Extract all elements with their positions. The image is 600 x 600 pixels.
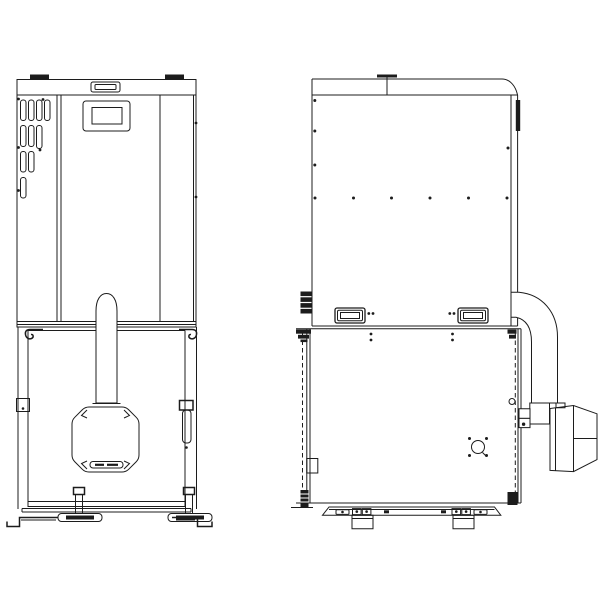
carry-handle-right <box>458 308 488 323</box>
latch-plate <box>180 401 194 411</box>
carry-handle-left <box>335 308 365 323</box>
base-beam <box>28 502 185 507</box>
pivot-pin-icon <box>509 399 515 405</box>
drawing-canvas <box>0 0 600 600</box>
burner-door-octagon <box>72 407 139 472</box>
lid-handle <box>377 75 397 78</box>
support-foot-left <box>352 515 373 529</box>
top-cap <box>312 79 518 95</box>
front-view <box>7 75 212 527</box>
lift-tab-left-icon <box>30 75 49 80</box>
base-rail <box>323 507 501 529</box>
feed-nozzle <box>530 403 550 424</box>
vent-grille <box>21 100 51 198</box>
cable-glands-icon <box>301 292 313 314</box>
door-hinge-bottom-right-icon <box>508 492 518 505</box>
cabinet-body <box>17 95 196 327</box>
boiler-lower-section <box>291 329 521 508</box>
lift-tab-right-icon <box>165 75 184 80</box>
floor-bracket-left-icon <box>7 518 58 527</box>
boiler-technical-drawing <box>0 0 600 600</box>
latch-plate <box>307 459 318 474</box>
hinge-bar-icon <box>516 100 520 131</box>
door-latch <box>183 410 192 443</box>
door-hinge-top-left-icon <box>296 330 311 343</box>
control-display <box>83 101 130 131</box>
feed-coupler <box>519 409 530 419</box>
flue-pipe <box>93 294 121 404</box>
inspection-port-icon <box>468 437 488 457</box>
side-view <box>291 75 597 529</box>
auger-motor <box>550 403 597 472</box>
screw-dots <box>313 99 509 200</box>
support-foot-right <box>453 515 474 529</box>
